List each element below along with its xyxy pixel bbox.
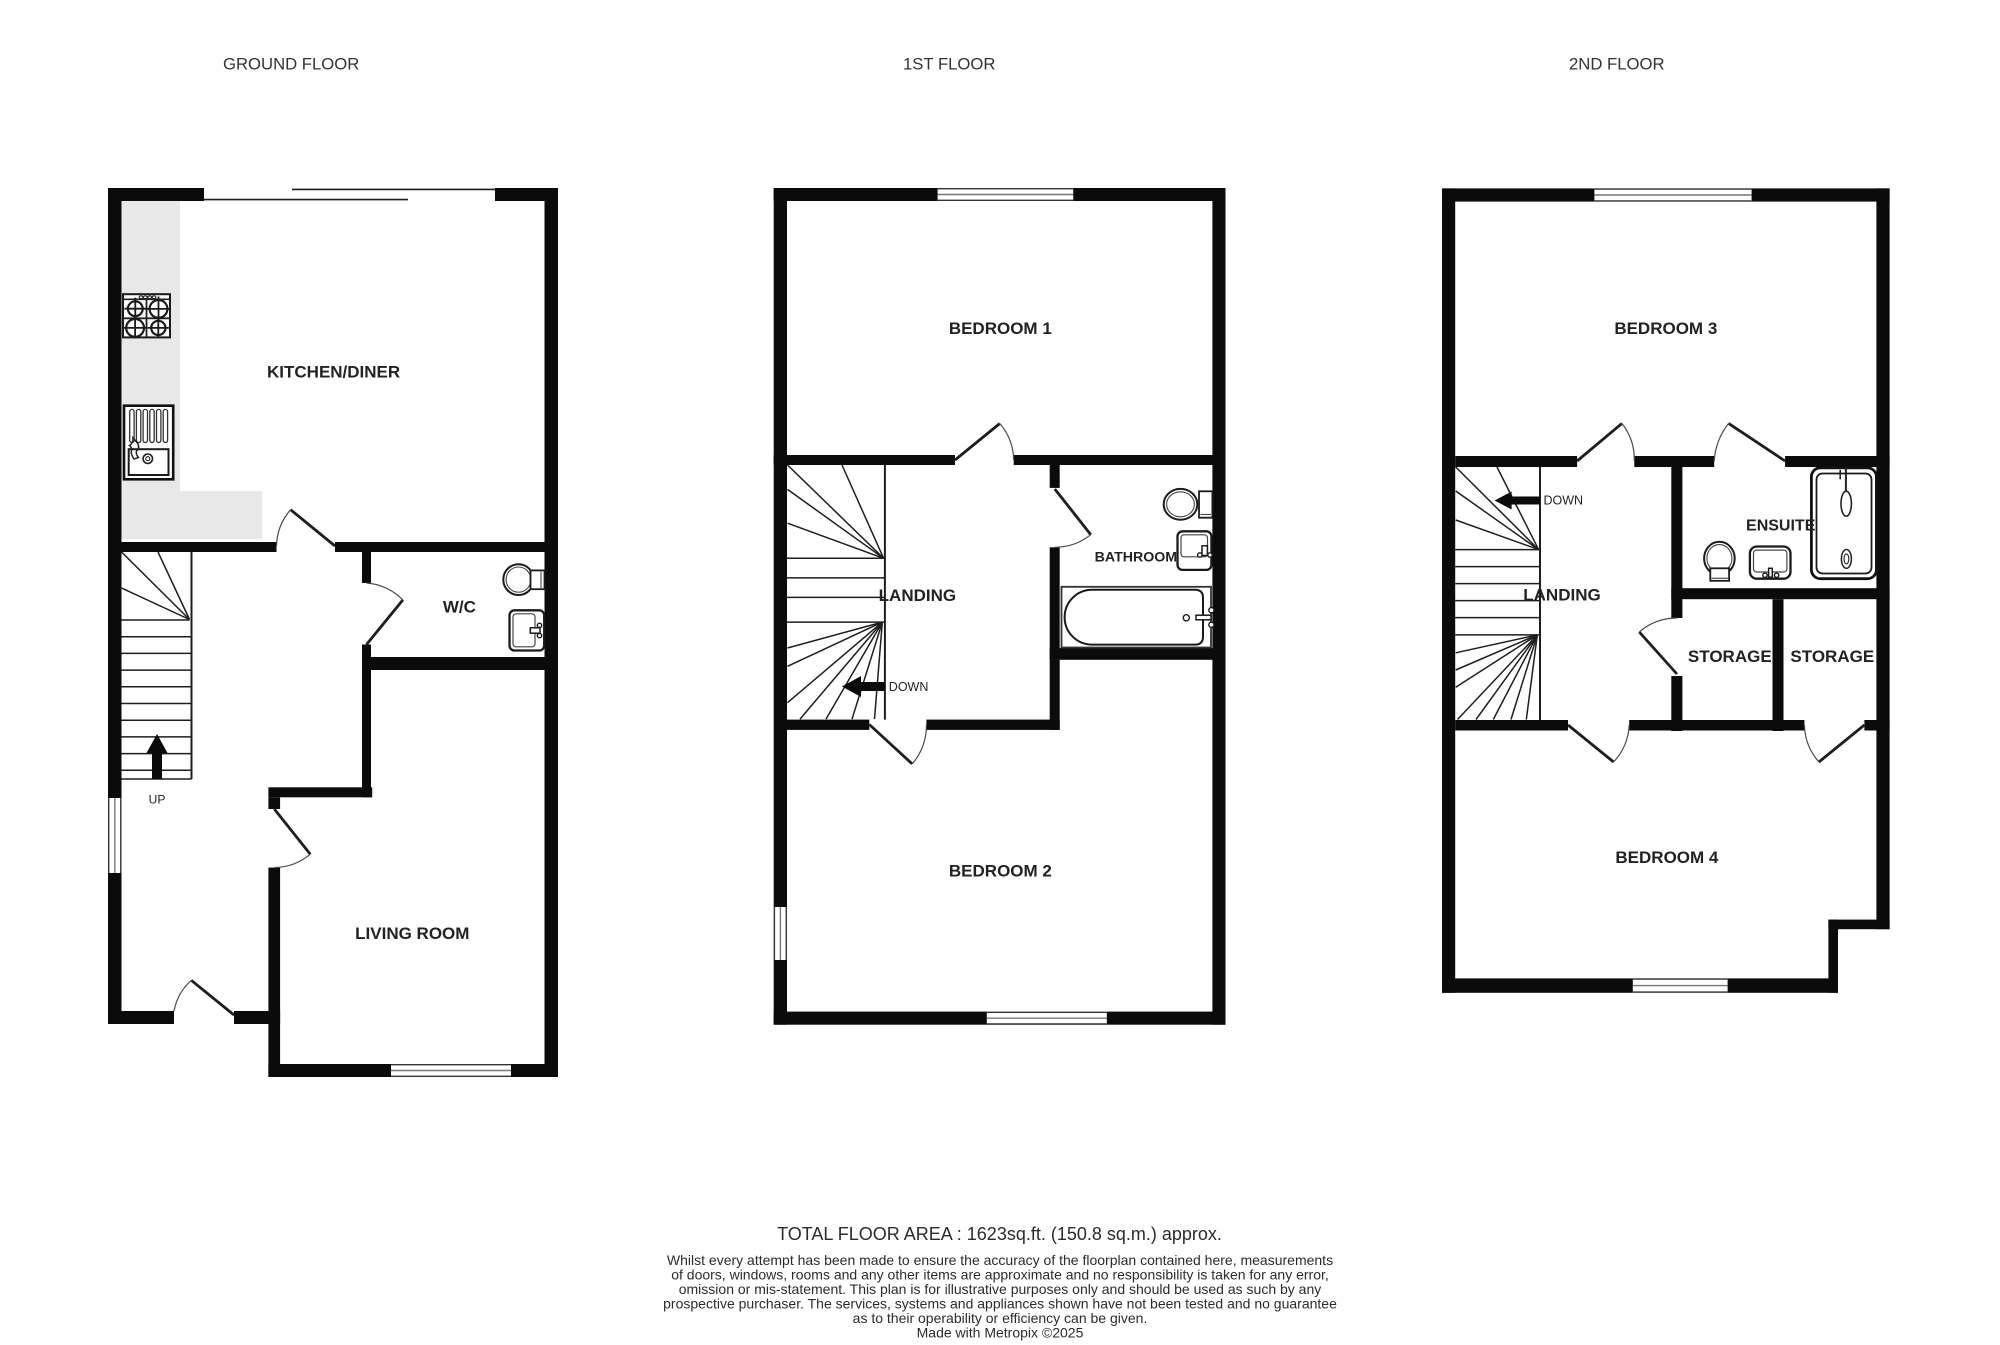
svg-text:KITCHEN/DINER: KITCHEN/DINER <box>267 363 400 382</box>
svg-text:LIVING ROOM: LIVING ROOM <box>355 924 469 943</box>
svg-text:GROUND FLOOR: GROUND FLOOR <box>223 55 359 74</box>
svg-text:2ND FLOOR: 2ND FLOOR <box>1569 55 1665 74</box>
svg-text:TOTAL FLOOR AREA : 1623sq.ft.: TOTAL FLOOR AREA : 1623sq.ft. (150.8 sq.… <box>777 1224 1222 1244</box>
svg-text:ENSUITE: ENSUITE <box>1746 517 1816 534</box>
svg-text:BEDROOM 2: BEDROOM 2 <box>949 862 1052 881</box>
svg-text:BEDROOM 3: BEDROOM 3 <box>1614 319 1717 338</box>
svg-text:Made with Metropix ©2025: Made with Metropix ©2025 <box>917 1325 1084 1341</box>
svg-text:BATHROOM: BATHROOM <box>1095 550 1178 566</box>
svg-text:STORAGE: STORAGE <box>1688 647 1772 666</box>
svg-text:DOWN: DOWN <box>1544 494 1584 508</box>
svg-text:1ST FLOOR: 1ST FLOOR <box>903 55 995 74</box>
svg-text:BEDROOM 4: BEDROOM 4 <box>1615 848 1719 867</box>
svg-text:STORAGE: STORAGE <box>1790 647 1874 666</box>
svg-text:UP: UP <box>149 793 166 807</box>
svg-text:LANDING: LANDING <box>879 586 956 605</box>
svg-text:DOWN: DOWN <box>889 680 929 694</box>
svg-text:BEDROOM 1: BEDROOM 1 <box>949 319 1052 338</box>
svg-text:LANDING: LANDING <box>1523 585 1600 604</box>
svg-text:W/C: W/C <box>443 598 476 617</box>
